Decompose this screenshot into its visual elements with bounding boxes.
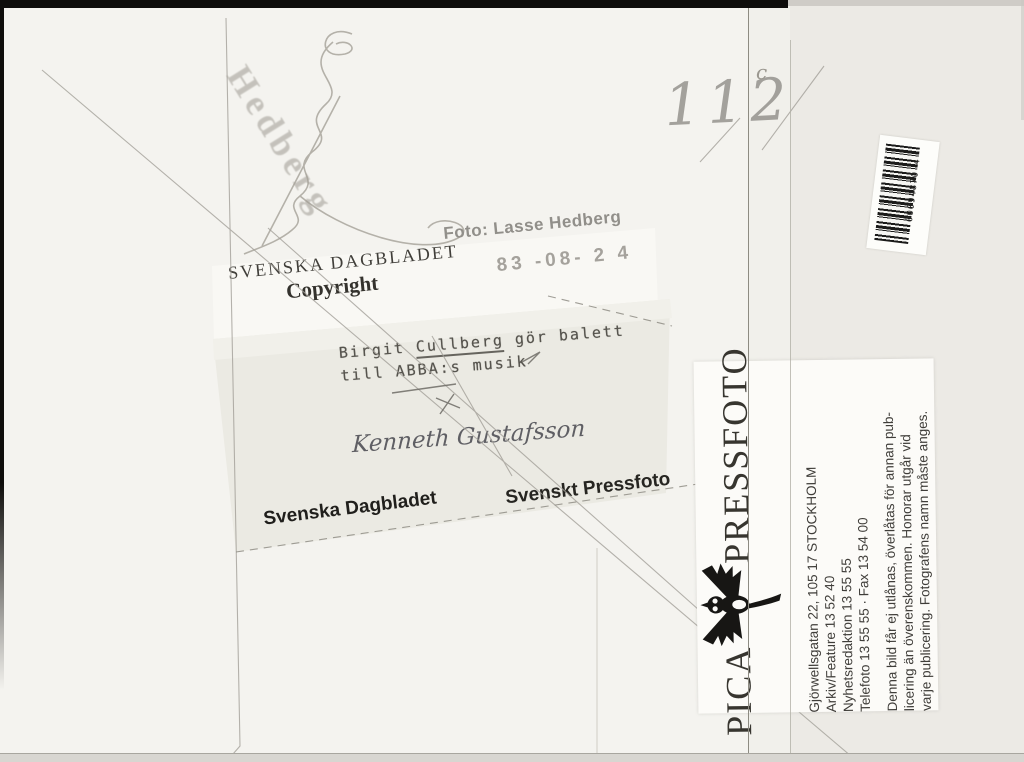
pica-pressfoto-label: PICA PRESSFOTO Gjörwellsgatan 22, 105 17… bbox=[694, 358, 939, 713]
photo-back-scan: Hedberg SVENSKA DAGBLADET Copyright Foto… bbox=[0, 0, 1024, 762]
pressfoto-wordmark: PRESSFOTO bbox=[713, 346, 758, 564]
scanner-edge-top-right bbox=[788, 0, 1024, 6]
crease-line-left bbox=[748, 0, 749, 762]
pica-brand-lockup: PICA PRESSFOTO bbox=[695, 368, 778, 714]
pica-address-block: Gjörwellsgatan 22, 105 17 STOCKHOLM Arki… bbox=[801, 366, 924, 713]
crease-line-right bbox=[790, 40, 791, 762]
disclaimer-line: varje publicering. Fotografens namn måst… bbox=[913, 366, 935, 711]
pencil-check-mark: c bbox=[756, 60, 767, 84]
scanner-edge-bottom bbox=[0, 753, 1024, 762]
pica-wordmark: PICA bbox=[717, 646, 760, 737]
scanner-edge-left bbox=[0, 0, 4, 690]
scanner-edge-top bbox=[0, 0, 788, 8]
magpie-icon bbox=[689, 561, 786, 648]
